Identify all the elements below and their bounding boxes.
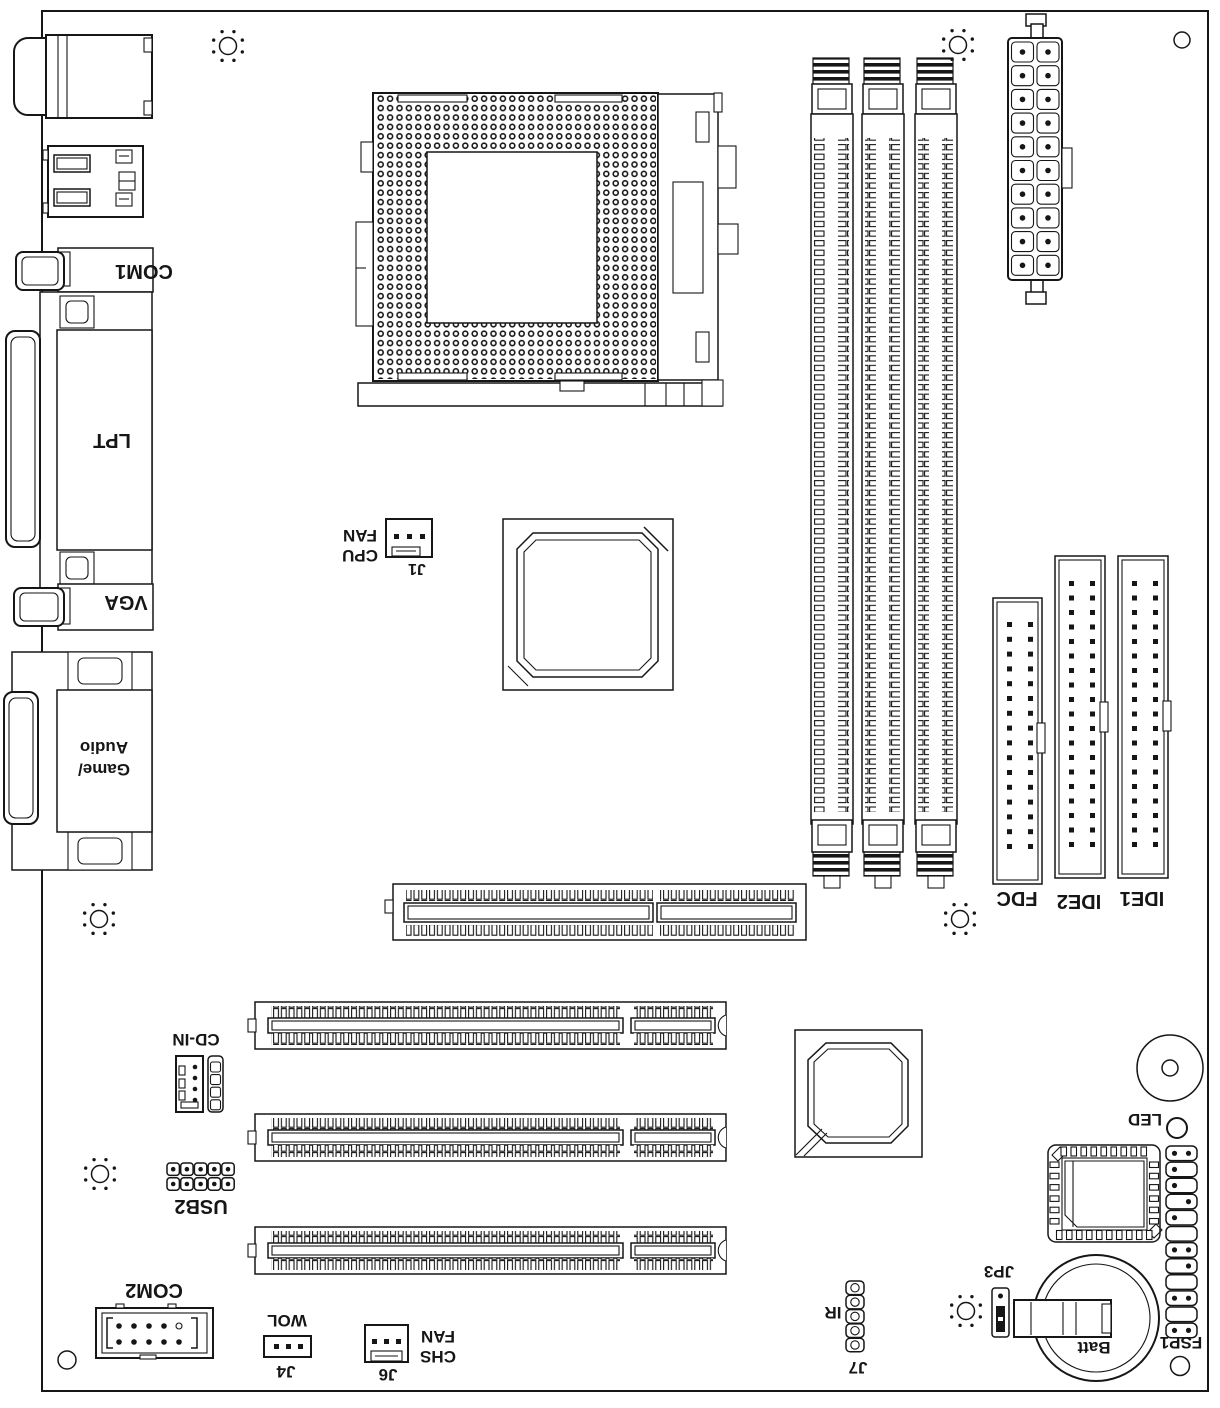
atx-power-connector xyxy=(1008,14,1072,304)
pci-slot-2 xyxy=(248,1114,726,1161)
led-indicator xyxy=(1167,1118,1187,1138)
com2-label: COM2 xyxy=(125,1279,183,1301)
j6-label: J6 xyxy=(379,1365,398,1384)
j1-label: J1 xyxy=(408,560,426,577)
cpu-fan-header xyxy=(386,519,432,557)
dimm-slot-1 xyxy=(811,58,853,888)
corner-hole xyxy=(58,1351,76,1369)
led-label: LED xyxy=(1128,1110,1162,1129)
ir-header xyxy=(846,1281,864,1352)
com2-header xyxy=(96,1304,213,1359)
cpu-socket xyxy=(356,93,738,406)
usb-port xyxy=(43,146,143,217)
chs-fan-label: CHS FAN xyxy=(420,1327,456,1366)
com1-label: COM1 xyxy=(115,260,173,282)
mounting-hole xyxy=(83,903,115,935)
svg-text:CPU: CPU xyxy=(342,546,378,565)
fdc-label: FDC xyxy=(996,887,1037,909)
batt-label: Batt xyxy=(1077,1338,1110,1357)
svg-text:FAN: FAN xyxy=(343,526,377,545)
mounting-hole xyxy=(944,903,976,935)
ide1-header xyxy=(1118,556,1171,878)
mounting-hole xyxy=(212,30,244,62)
mounting-hole xyxy=(942,29,974,61)
usb2-label: USB2 xyxy=(174,1195,227,1217)
svg-text:FAN: FAN xyxy=(421,1327,455,1346)
vga-label: VGA xyxy=(104,591,147,613)
southbridge-chip xyxy=(795,1030,922,1157)
amr-slot xyxy=(385,884,806,940)
corner-hole xyxy=(1171,1357,1190,1376)
usb2-header xyxy=(167,1163,234,1190)
ps2-port xyxy=(14,35,152,118)
ide2-label: IDE2 xyxy=(1057,890,1101,912)
wol-header xyxy=(264,1336,311,1357)
cd-in-label: CD-IN xyxy=(172,1030,219,1049)
svg-text:Audio: Audio xyxy=(80,738,128,757)
bios-chip xyxy=(1048,1145,1162,1242)
dimm-slot-3 xyxy=(915,58,957,888)
mounting-hole xyxy=(950,1295,982,1327)
pci-slot-1 xyxy=(248,1002,726,1049)
corner-hole xyxy=(1174,32,1190,48)
lpt-label: LPT xyxy=(93,429,131,451)
dimm-slot-2 xyxy=(862,58,904,888)
fdc-header xyxy=(993,598,1045,884)
wol-label: WOL xyxy=(267,1311,307,1330)
ir-label: IR xyxy=(825,1303,842,1322)
chs-fan-header xyxy=(365,1325,408,1362)
jp3-jumper xyxy=(992,1288,1009,1337)
svg-text:CHS: CHS xyxy=(420,1347,456,1366)
fsp1-header xyxy=(1166,1146,1197,1338)
mounting-hole xyxy=(84,1158,116,1190)
motherboard-diagram: COM1 LPT VGA Game/ Audio xyxy=(0,0,1220,1408)
j7-label: J7 xyxy=(849,1358,868,1377)
svg-text:Game/: Game/ xyxy=(78,760,130,779)
buzzer xyxy=(1137,1035,1203,1101)
j4-label: J4 xyxy=(276,1362,295,1381)
northbridge-chip xyxy=(503,519,673,690)
cpu-fan-label: CPU FAN xyxy=(342,526,378,565)
jp3-label: JP3 xyxy=(984,1262,1014,1281)
ide2-header xyxy=(1055,556,1108,878)
ide1-label: IDE1 xyxy=(1120,887,1164,909)
battery xyxy=(1014,1255,1159,1381)
cd-in-connector xyxy=(176,1056,223,1112)
pci-slot-3 xyxy=(248,1227,726,1274)
